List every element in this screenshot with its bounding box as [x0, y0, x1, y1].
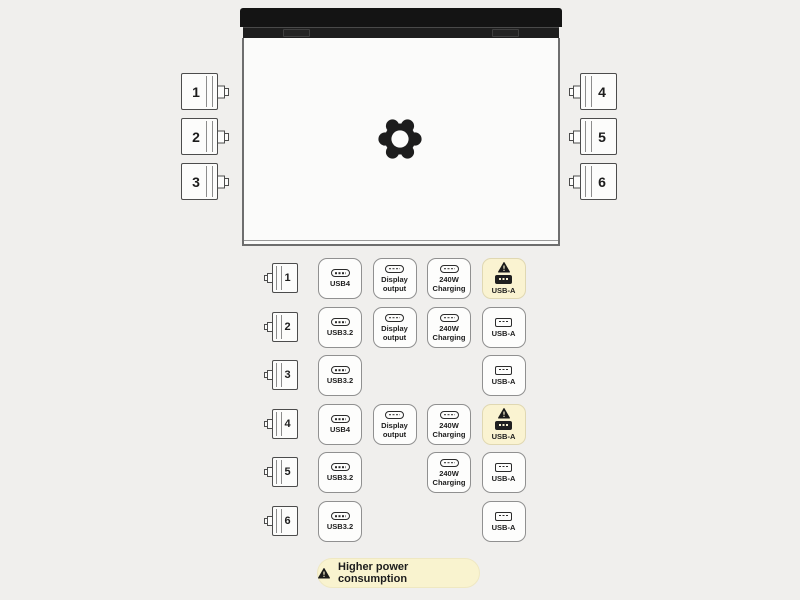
capability-badge-240w-charging: 240W Charging	[427, 307, 471, 348]
capability-badge-display-output: Display output	[373, 307, 417, 348]
matrix-port-5: 5	[272, 457, 298, 487]
usb-a-port-icon	[495, 275, 512, 284]
card-connector-tip	[224, 178, 229, 186]
badge-label: USB4	[330, 425, 350, 434]
capability-badge-usb-a: USB-A	[482, 258, 526, 299]
badge-label: 240W Charging	[429, 324, 469, 342]
usb-a-port-icon	[495, 512, 512, 521]
card-rails	[276, 509, 282, 533]
usb-c-port-icon	[331, 463, 350, 471]
usb-c-port-icon	[440, 265, 459, 273]
card-rails	[585, 121, 592, 152]
matrix-port-1: 1	[272, 263, 298, 293]
matrix-port-number: 6	[284, 515, 290, 527]
usb-c-port-icon	[440, 314, 459, 322]
badge-label: USB-A	[492, 286, 516, 295]
usb-a-port-icon	[495, 318, 512, 327]
usb-c-port-icon	[385, 265, 404, 273]
warning-triangle-icon	[498, 408, 510, 419]
card-connector-tip	[224, 133, 229, 141]
badge-label: USB-A	[492, 377, 516, 386]
card-connector-tip	[264, 469, 268, 475]
card-rails	[585, 166, 592, 197]
capability-badge-240w-charging: 240W Charging	[427, 404, 471, 445]
card-rails	[276, 460, 282, 484]
matrix-port-6: 6	[272, 506, 298, 536]
side-port-number: 2	[192, 129, 200, 145]
card-rails	[276, 315, 282, 339]
card-rails	[276, 363, 282, 387]
side-port-number: 3	[192, 174, 200, 190]
side-port-number: 5	[598, 129, 606, 145]
warning-triangle-icon	[318, 568, 330, 579]
hinge-right	[492, 29, 519, 37]
badge-label: 240W Charging	[429, 275, 469, 293]
card-connector-tip	[264, 275, 268, 281]
usb-c-port-icon	[440, 459, 459, 467]
capability-badge-usb3-2: USB3.2	[318, 307, 362, 348]
usb-a-port-icon	[495, 463, 512, 472]
card-connector-tip	[264, 372, 268, 378]
card-rails	[276, 412, 282, 436]
side-port-number: 1	[192, 84, 200, 100]
card-connector-tip	[264, 518, 268, 524]
side-port-2: 2	[181, 118, 218, 155]
capability-badge-usb4: USB4	[318, 404, 362, 445]
capability-badge-usb-a: USB-A	[482, 307, 526, 348]
legend-pill: Higher power consumption	[317, 558, 480, 588]
matrix-port-number: 1	[284, 272, 290, 284]
badge-label: Display output	[375, 324, 415, 342]
capability-badge-usb-a: USB-A	[482, 452, 526, 493]
side-port-4: 4	[580, 73, 617, 110]
capability-badge-usb3-2: USB3.2	[318, 452, 362, 493]
usb-c-port-icon	[331, 269, 350, 277]
card-rails	[585, 76, 592, 107]
badge-label: USB3.2	[327, 473, 353, 482]
card-connector-tip	[569, 178, 574, 186]
badge-label: 240W Charging	[429, 421, 469, 439]
card-connector-tip	[569, 88, 574, 96]
capability-badge-240w-charging: 240W Charging	[427, 258, 471, 299]
hinge-left	[283, 29, 310, 37]
laptop-port-diagram: 123456 1USB4Display output240W ChargingU…	[0, 0, 800, 600]
laptop-screen-edge	[240, 8, 562, 27]
badge-label: Display output	[375, 421, 415, 439]
card-connector	[573, 175, 581, 188]
card-rails	[206, 76, 213, 107]
card-connector	[573, 130, 581, 143]
usb-c-port-icon	[440, 411, 459, 419]
matrix-port-number: 3	[284, 369, 290, 381]
badge-label: USB3.2	[327, 328, 353, 337]
usb-a-port-icon	[495, 366, 512, 375]
badge-label: USB-A	[492, 329, 516, 338]
matrix-port-2: 2	[272, 312, 298, 342]
usb-c-port-icon	[331, 318, 350, 326]
side-port-1: 1	[181, 73, 218, 110]
matrix-port-number: 5	[284, 466, 290, 478]
side-port-number: 6	[598, 174, 606, 190]
matrix-port-number: 2	[284, 321, 290, 333]
card-connector	[573, 85, 581, 98]
badge-label: USB4	[330, 279, 350, 288]
capability-badge-usb-a: USB-A	[482, 355, 526, 396]
badge-label: USB-A	[492, 474, 516, 483]
side-port-5: 5	[580, 118, 617, 155]
capability-badge-display-output: Display output	[373, 404, 417, 445]
card-rails	[276, 266, 282, 290]
card-connector-tip	[264, 324, 268, 330]
side-port-3: 3	[181, 163, 218, 200]
usb-c-port-icon	[331, 415, 350, 423]
usb-c-port-icon	[331, 512, 350, 520]
badge-label: Display output	[375, 275, 415, 293]
usb-a-port-icon	[495, 421, 512, 430]
capability-badge-usb-a: USB-A	[482, 501, 526, 542]
card-rails	[206, 166, 213, 197]
card-rails	[206, 121, 213, 152]
capability-badge-display-output: Display output	[373, 258, 417, 299]
laptop-hinge-strip	[243, 27, 559, 38]
badge-label: 240W Charging	[429, 469, 469, 487]
card-connector-tip	[224, 88, 229, 96]
framework-gear-logo-icon	[376, 115, 424, 163]
capability-badge-usb3-2: USB3.2	[318, 355, 362, 396]
badge-label: USB3.2	[327, 376, 353, 385]
legend-label: Higher power consumption	[338, 561, 479, 585]
side-port-6: 6	[580, 163, 617, 200]
capability-badge-240w-charging: 240W Charging	[427, 452, 471, 493]
matrix-port-4: 4	[272, 409, 298, 439]
usb-c-port-icon	[331, 366, 350, 374]
capability-badge-usb4: USB4	[318, 258, 362, 299]
side-port-number: 4	[598, 84, 606, 100]
matrix-port-number: 4	[284, 418, 290, 430]
capability-badge-usb-a: USB-A	[482, 404, 526, 445]
badge-label: USB-A	[492, 523, 516, 532]
badge-label: USB-A	[492, 432, 516, 441]
usb-c-port-icon	[385, 314, 404, 322]
warning-triangle-icon	[498, 262, 510, 273]
card-connector-tip	[569, 133, 574, 141]
usb-c-port-icon	[385, 411, 404, 419]
card-connector-tip	[264, 421, 268, 427]
capability-badge-usb3-2: USB3.2	[318, 501, 362, 542]
matrix-port-3: 3	[272, 360, 298, 390]
badge-label: USB3.2	[327, 522, 353, 531]
